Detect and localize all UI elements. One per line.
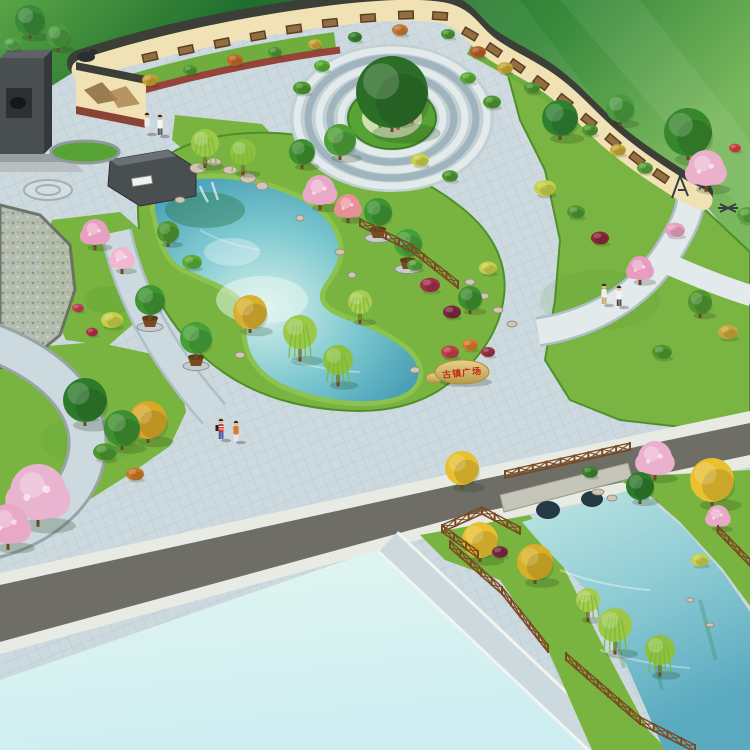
- rock: [335, 249, 345, 255]
- rock: [507, 321, 517, 327]
- rock: [465, 279, 475, 285]
- bridge-arch: [536, 501, 560, 519]
- rock: [493, 307, 503, 313]
- rock: [235, 352, 245, 358]
- rock: [348, 272, 356, 278]
- sculpture: [10, 97, 26, 109]
- mural-panel: [322, 18, 339, 29]
- rock: [607, 495, 617, 501]
- rock: [410, 367, 420, 373]
- hedge-planter: [51, 141, 119, 163]
- mural-panel: [398, 10, 414, 20]
- mural-panel: [360, 13, 377, 23]
- rock: [296, 215, 304, 221]
- rock: [175, 197, 185, 203]
- planter-tree: [135, 285, 166, 332]
- shrub: [93, 443, 118, 463]
- rock: [256, 182, 268, 190]
- rock: [686, 598, 694, 602]
- mural-panel: [432, 11, 449, 21]
- rock: [223, 166, 237, 174]
- paving-motif: [24, 180, 72, 200]
- rock: [706, 623, 714, 627]
- park-aerial-view: 古镇广场: [0, 0, 750, 750]
- rock: [592, 489, 604, 495]
- landscape-rendering: 古镇广场: [0, 0, 750, 750]
